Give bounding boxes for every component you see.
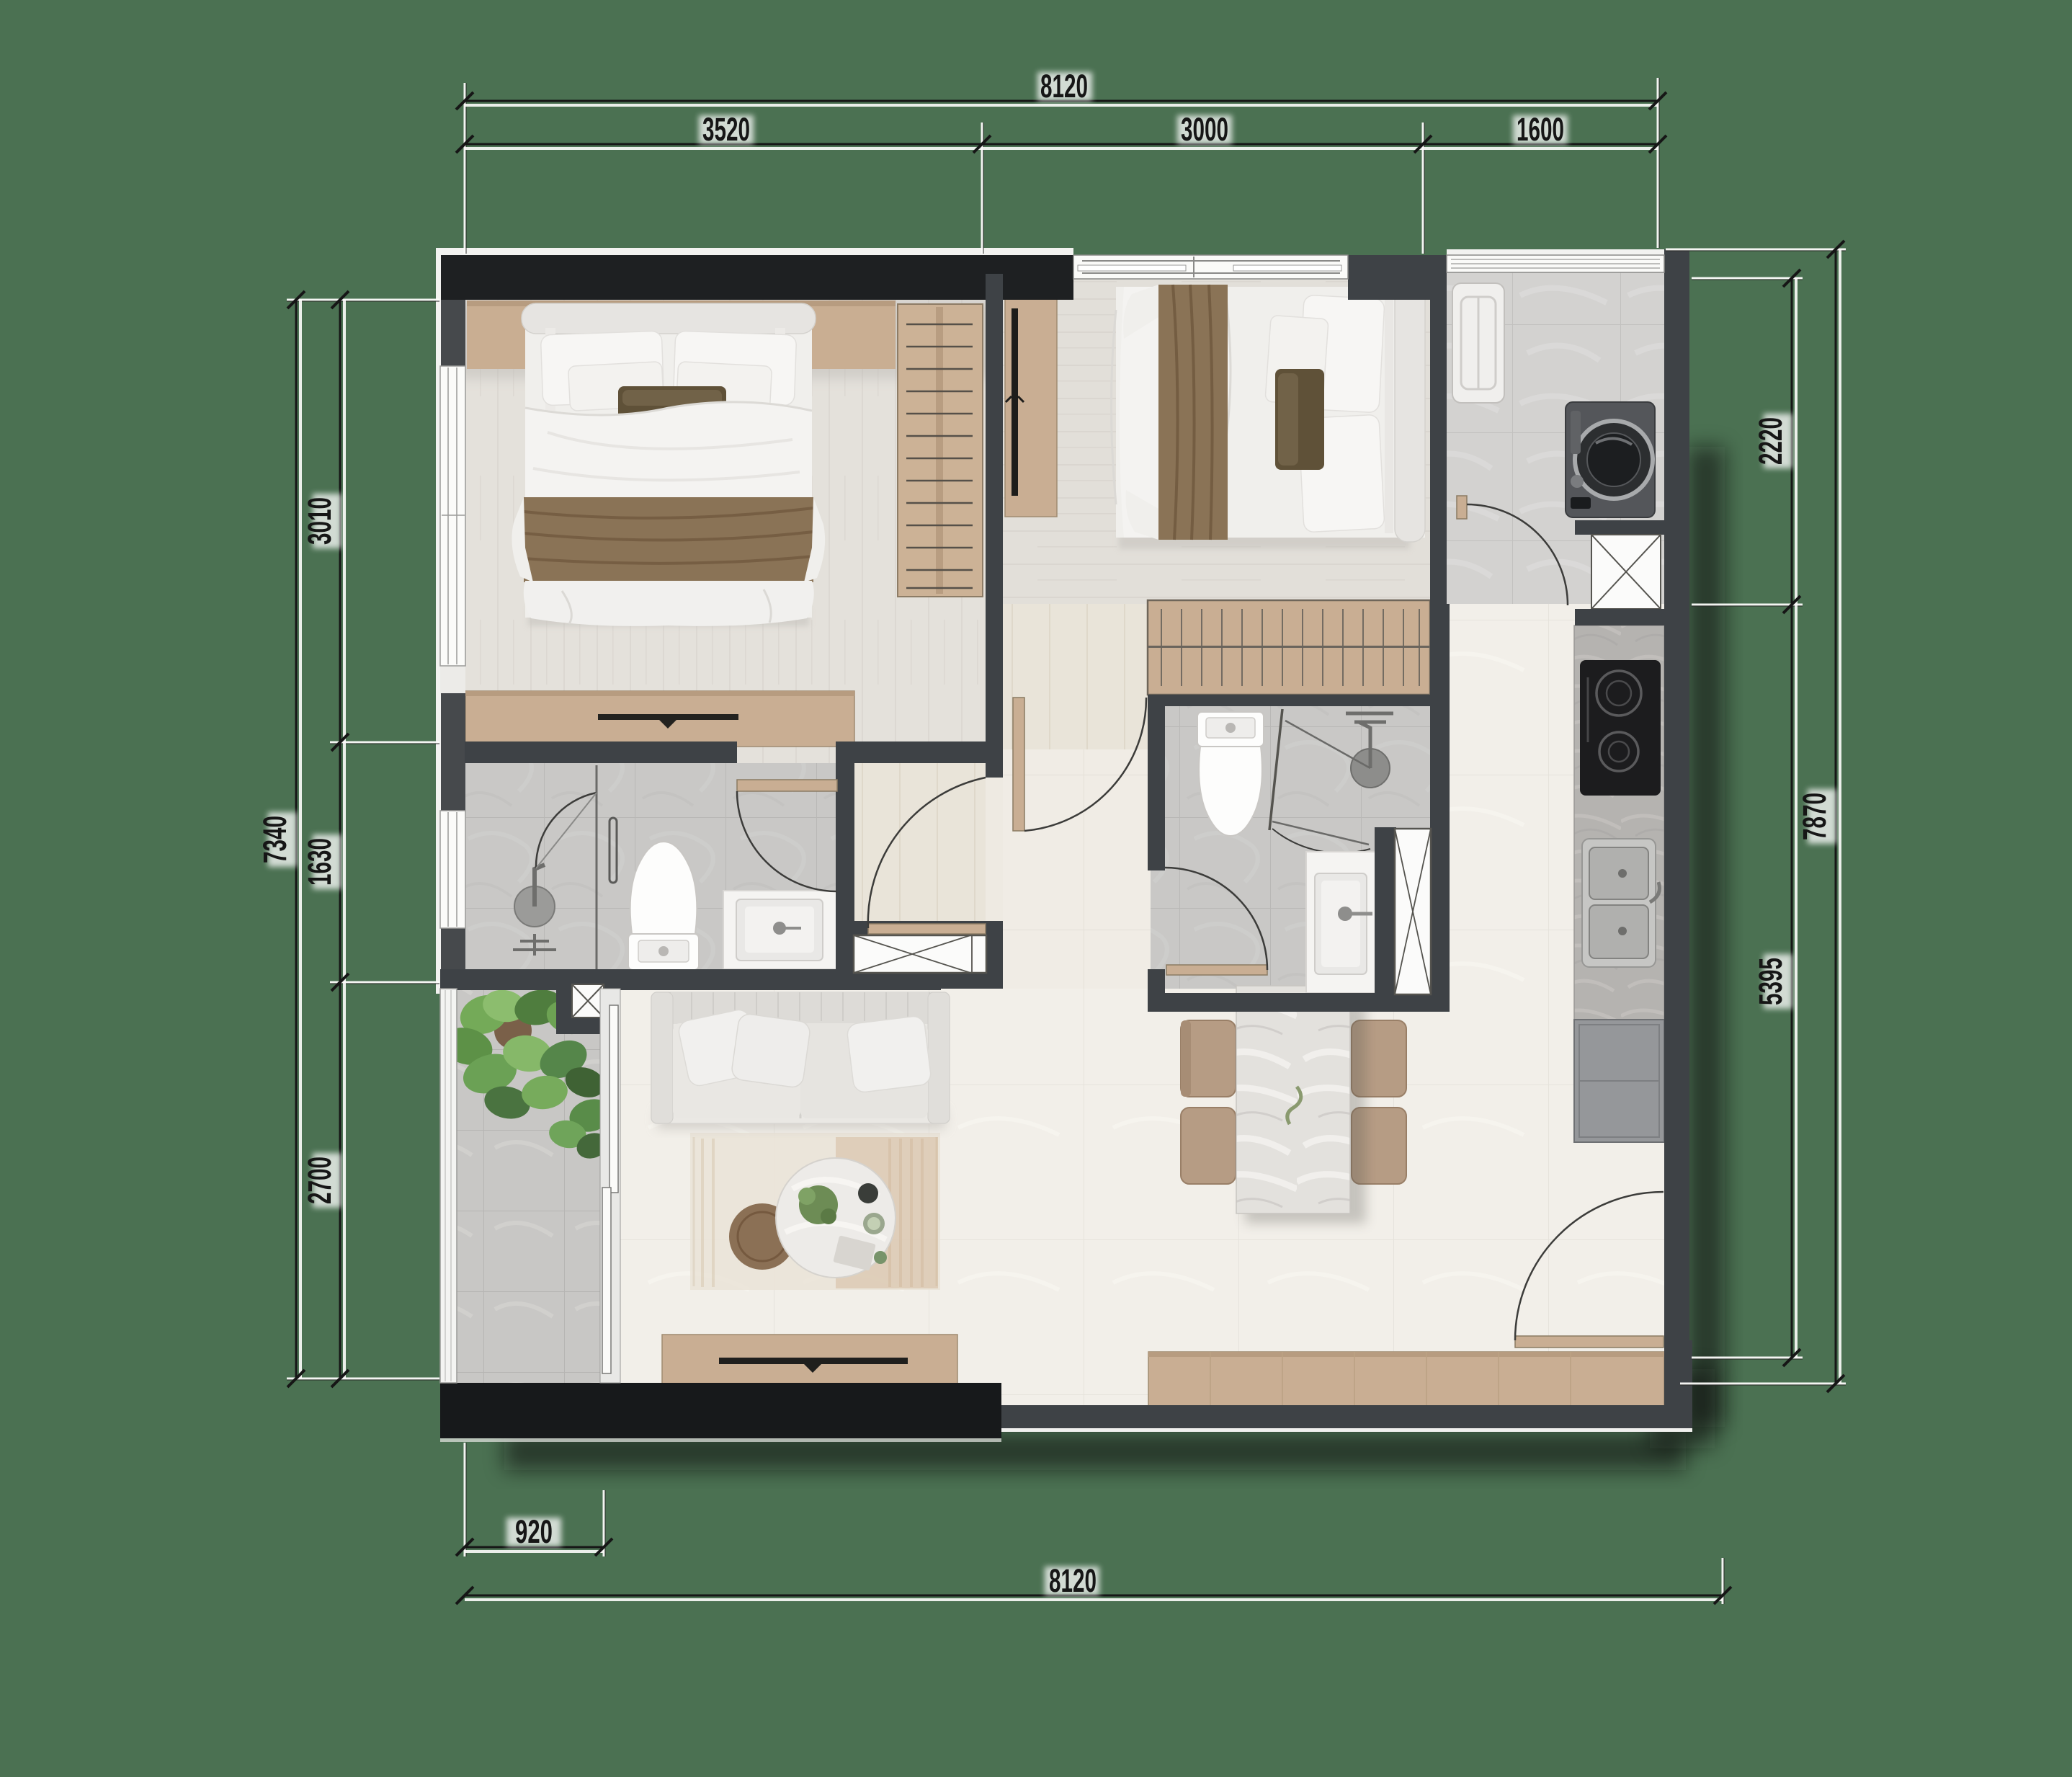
svg-text:2700: 2700	[301, 1157, 338, 1204]
svg-text:920: 920	[515, 1513, 553, 1550]
svg-text:5395: 5395	[1752, 958, 1789, 1005]
svg-text:2220: 2220	[1752, 417, 1789, 465]
svg-text:7340: 7340	[256, 816, 293, 863]
svg-text:3520: 3520	[702, 111, 750, 148]
svg-text:1630: 1630	[301, 838, 338, 886]
svg-text:3010: 3010	[301, 497, 338, 545]
svg-text:3000: 3000	[1181, 111, 1228, 148]
svg-text:7870: 7870	[1796, 793, 1833, 840]
svg-text:8120: 8120	[1049, 1562, 1097, 1599]
svg-text:1600: 1600	[1517, 111, 1564, 148]
svg-text:8120: 8120	[1040, 68, 1088, 104]
